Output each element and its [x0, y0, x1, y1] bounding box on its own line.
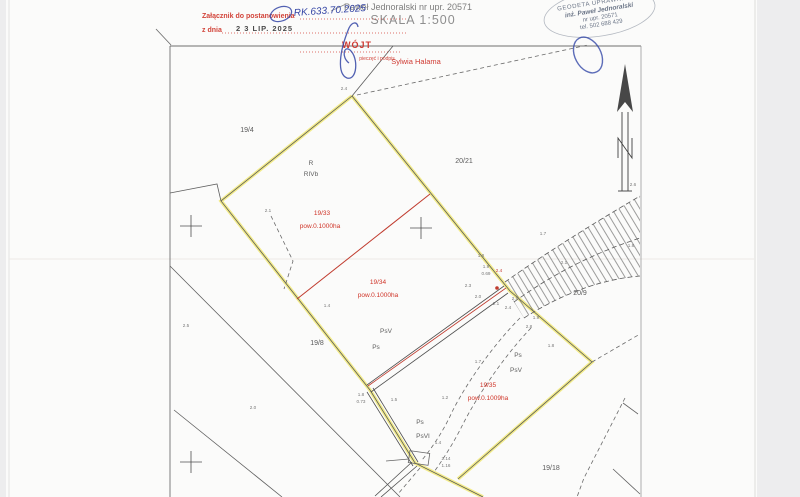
elevation-point-label: 1.2 — [442, 395, 449, 400]
new-parcel-area-label: pow.0.1009ha — [468, 395, 509, 402]
parcel-number-label: 20/9 — [573, 290, 587, 297]
new-parcel-area-label: 19/33 — [314, 210, 331, 217]
mayor-name: Sylwia Halama — [391, 57, 441, 66]
elevation-point-label: 2.0 — [250, 405, 257, 410]
elevation-point-label: 2.3 — [465, 283, 472, 288]
attachment-stamp-line1: Załącznik do postanowienia — [202, 13, 295, 20]
elevation-point-label: 1.8 — [478, 253, 485, 258]
grid-cross-marks — [180, 215, 432, 473]
map-scale-label: SKALA 1:500 — [370, 13, 455, 27]
mayor-stamp: WÓJT Sylwia Halama — [340, 23, 441, 78]
elevation-point-label: 1.8 — [548, 343, 555, 348]
elevation-point-label: 1.8 — [628, 243, 635, 248]
north-arrow-icon — [617, 64, 633, 191]
land-use-label: Ps — [514, 352, 522, 359]
road-hatched-band — [505, 196, 640, 318]
land-use-label: Ps — [416, 419, 424, 426]
new-parcel-area-label: 19/35 — [480, 382, 497, 389]
parcel-number-label: 19/8 — [310, 340, 324, 347]
driveway-lines — [367, 286, 508, 497]
land-use-label: PsV — [510, 367, 523, 374]
land-use-label: RIVb — [304, 171, 319, 178]
elevation-point-label: 1.7 — [540, 231, 547, 236]
surveyor-stamp: GEODETA UPRAWNIONY inż. Paweł Jednoralsk… — [541, 0, 659, 45]
elevation-point-label: 2.14 — [442, 456, 451, 461]
elevation-point-label: 1.7 — [475, 359, 482, 364]
date-stamp: 2 3 LIP. 2025 — [236, 24, 293, 33]
case-number-text: RK.633.70.2025 — [293, 3, 366, 19]
elevation-point-label: 1.16 — [442, 463, 451, 468]
new-parcel-area-label: pow.0.1000ha — [358, 292, 399, 299]
scan-artifacts — [9, 0, 755, 497]
elevation-point-label: 1.8 — [358, 392, 365, 397]
elevation-point-label: 1.5 — [391, 397, 398, 402]
elevation-point-label: 2.4 — [496, 268, 503, 273]
elevation-point-label: 2.4 — [505, 305, 512, 310]
attachment-stamp-date-label: z dnia — [202, 27, 222, 34]
land-use-label: PsV — [380, 328, 393, 335]
land-use-label: R — [309, 160, 314, 167]
attachment-stamp-caption: pieczęć i podpis — [359, 56, 395, 62]
elevation-point-label: 1.4 — [324, 303, 331, 308]
elevation-point-label: 2.5 — [183, 323, 190, 328]
elevation-point-label: 2.4 — [341, 86, 348, 91]
elevation-point-label: 2.5 — [512, 296, 519, 301]
scanned-cadastral-map: Paweł Jednoralski nr upr. 20571 SKALA 1:… — [0, 0, 800, 497]
elevation-point-label: 1.9 — [533, 315, 540, 320]
parcel-number-label: 19/4 — [240, 127, 254, 134]
pen-oval-mark — [568, 32, 609, 78]
new-parcel-area-label: 19/34 — [370, 279, 387, 286]
elevation-point-label: 1.9 — [483, 264, 490, 269]
map-drawing: Paweł Jednoralski nr upr. 20571 SKALA 1:… — [0, 0, 800, 497]
elevation-point-label: 2.0 — [475, 294, 482, 299]
mayor-signature — [340, 23, 358, 78]
parcel-number-label: 20/21 — [455, 158, 473, 165]
elevation-point-label: 2.1 — [265, 208, 272, 213]
new-parcel-area-label: pow.0.1000ha — [300, 223, 341, 230]
elevation-point-label: 0.69 — [482, 271, 491, 276]
parcel-number-label: 19/18 — [542, 465, 560, 472]
elevation-point-label: 1.4 — [435, 440, 442, 445]
elevation-point-label: 2.1 — [561, 260, 568, 265]
elevation-point-label: 2.1 — [493, 301, 500, 306]
land-use-label: PsVI — [416, 433, 430, 440]
land-use-label: Ps — [372, 344, 380, 351]
elevation-point-label: 0.73 — [357, 399, 366, 404]
elevation-point-label: 2.8 — [526, 324, 533, 329]
elevation-point-label: 2.6 — [630, 182, 637, 187]
